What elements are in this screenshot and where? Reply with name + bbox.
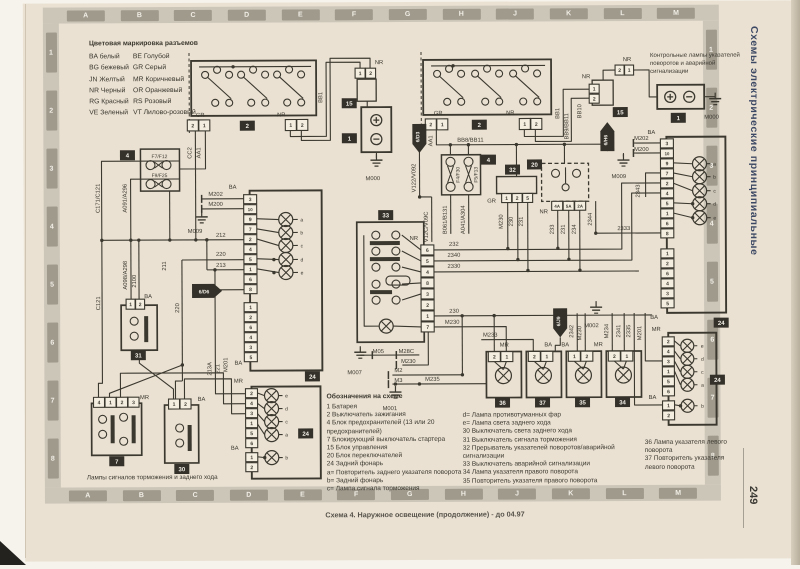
page-number-rule	[743, 448, 744, 528]
wire-label: NR	[277, 113, 285, 119]
fuse-icon	[464, 182, 473, 191]
wire	[175, 381, 182, 399]
wire	[279, 76, 303, 98]
wire-label: 230	[449, 309, 459, 315]
brake-lamps-note: Лампы сигналов торможения и заднего хода	[87, 474, 218, 482]
component-box	[361, 107, 391, 152]
color-code: JN Желтый	[89, 75, 133, 86]
contact-point	[520, 98, 527, 105]
wire	[434, 271, 639, 272]
photo-corner	[0, 541, 26, 565]
component-badge-number: 31	[135, 353, 142, 359]
contact-point	[262, 99, 269, 106]
connector-pin-number: 1	[359, 71, 362, 77]
wire-label: d	[285, 407, 288, 413]
fuse-icon	[162, 161, 171, 170]
wire-label: F5/F13	[474, 167, 480, 183]
wire	[674, 361, 680, 372]
contact-point	[444, 98, 451, 105]
wire-label: 213A	[207, 362, 213, 376]
wire-label: 230	[509, 217, 515, 227]
wire	[256, 219, 279, 220]
wire-label: F4/F30	[456, 167, 462, 183]
connector-pin-number: 1	[573, 354, 576, 360]
wire	[673, 173, 693, 177]
wire-junction	[594, 231, 597, 234]
wire-label: MR	[500, 343, 509, 349]
component-box	[497, 176, 537, 193]
contact-point	[238, 71, 245, 78]
wire-label: BA	[561, 342, 569, 348]
connector-pin-number: 9	[666, 161, 669, 167]
contact-point	[372, 296, 380, 304]
ground-label: M000	[366, 176, 381, 182]
wire	[215, 270, 246, 394]
wire-junction	[213, 268, 216, 271]
wire-label: A091/A296	[123, 184, 129, 213]
contact-point	[372, 280, 380, 288]
connector-pin-number: 1	[667, 403, 670, 409]
wire-label: BA	[544, 342, 552, 348]
wire	[102, 240, 244, 241]
wire-label: d	[701, 357, 704, 363]
wire-label: M200	[208, 202, 223, 208]
color-code-legend: Цветовая маркировка разъемов BA белыйBE …	[89, 39, 200, 120]
wire	[131, 179, 180, 240]
component-badge-number: 24	[302, 432, 309, 438]
component-badge-number: 15	[617, 110, 624, 116]
contact-point	[120, 437, 128, 445]
wire-junction	[272, 258, 275, 261]
connector-pin-number: 2	[533, 354, 536, 360]
wire-label: M201	[637, 326, 643, 341]
connector-pin-number: 5A	[566, 204, 572, 209]
wire-label: d	[301, 257, 304, 263]
wire-junction	[449, 143, 452, 146]
wire-label: M202	[634, 136, 649, 142]
wire-junction	[205, 238, 208, 241]
wire	[256, 229, 279, 233]
connector-pin-number: 1	[666, 211, 669, 217]
connector-pin-number: 2	[593, 97, 596, 103]
contact-point	[274, 71, 281, 78]
wire-label: e	[301, 270, 304, 276]
wire-junction	[556, 247, 559, 250]
contact-point	[99, 415, 107, 423]
color-code: GR Серый	[133, 63, 200, 74]
wire-label: c	[285, 420, 288, 426]
page-number: 249	[747, 486, 759, 504]
wire-label: NR	[582, 74, 590, 80]
wire-label: V122/V092	[411, 164, 417, 193]
wire-label: a	[300, 217, 303, 223]
connector-pin-number: 2	[184, 402, 187, 408]
wire-label: NR	[506, 111, 514, 117]
connector-pin-number: 6	[250, 441, 253, 447]
contact-point	[534, 98, 541, 105]
contact-point	[458, 70, 465, 77]
contact-point	[120, 413, 128, 421]
wire-label: BA	[647, 130, 655, 136]
wire-label: BA	[229, 185, 237, 191]
component-box	[191, 60, 316, 116]
connector-pin-number: 3	[666, 291, 669, 297]
wire-label: V12C/V09C	[424, 212, 430, 243]
wire-junction	[563, 143, 566, 146]
contact-point	[372, 263, 380, 271]
wire-label: M235	[425, 377, 440, 383]
wire-label: NR	[540, 209, 548, 215]
connector-pin-number: 8	[426, 281, 429, 287]
wire	[673, 213, 693, 218]
color-code: VT Лилово-розовый	[133, 108, 200, 119]
page-paper: AABBCCDDEEFFGGHHJJKKLLMM1122334455667788…	[23, 0, 795, 561]
designations-column-3: 36 Лампа указателя левого поворота37 Пов…	[645, 439, 745, 472]
contact-point	[99, 430, 107, 438]
wire-label: M201	[223, 358, 229, 373]
fuse-icon	[146, 161, 155, 170]
control-lamps-note: Контрольные лампы указателей поворотов и…	[650, 53, 746, 77]
wire-label: 2100	[132, 275, 138, 288]
connector-pin-number: 1	[628, 68, 631, 74]
component-box	[121, 305, 157, 350]
color-code: BA белый	[89, 52, 133, 63]
connector-pin-number: 5	[666, 301, 669, 307]
connector-pin-number: 5	[250, 431, 253, 437]
page-edge	[25, 4, 26, 558]
wire-label: C171/C121	[96, 184, 102, 213]
contact-point	[262, 71, 269, 78]
wire	[393, 326, 421, 327]
wire	[434, 183, 661, 250]
wire-junction	[578, 269, 581, 272]
wire-junction	[100, 239, 103, 242]
wire-label: 212	[216, 233, 226, 239]
wire-junction	[394, 382, 397, 385]
wire-label: e	[701, 344, 704, 350]
wire-label: AA1	[428, 135, 434, 146]
contact-point	[392, 296, 400, 304]
connector-pin-number: 1	[593, 87, 596, 93]
connector-pin-number: 1	[289, 123, 292, 129]
contact-point	[496, 98, 503, 105]
wire-label: 2335	[626, 325, 632, 338]
wire-label: F9/F25	[152, 173, 168, 179]
connector-pin-number: 2	[618, 68, 621, 74]
wire-label: M202	[208, 192, 223, 198]
connector-pin-number: 2	[139, 302, 142, 308]
connector-pin-number: 3	[249, 345, 252, 351]
wire-label: 2330	[447, 264, 460, 270]
contact-bar	[132, 415, 136, 443]
connector-pin-number: 1	[441, 122, 444, 128]
connector-pin-number: 6	[426, 248, 429, 254]
designations-column-1: 1 Батарея2 Выключатель зажигания4 Блок п…	[327, 403, 479, 494]
fuse-icon	[162, 180, 171, 189]
connector-pin-number: 1	[249, 305, 252, 311]
wire-label: d	[713, 202, 716, 208]
connector-pin-number: 2	[426, 303, 429, 309]
contact-point	[392, 247, 400, 255]
wire-junction	[263, 456, 266, 459]
wire-label: BA	[198, 397, 206, 403]
connector-pin-number: 7	[666, 171, 669, 177]
wire-label: 2344	[588, 212, 594, 226]
wire-label: 220	[175, 303, 181, 313]
wire-label: MR	[652, 327, 661, 333]
connector-pin-number: 1	[173, 402, 176, 408]
wire-label: MR	[594, 342, 603, 348]
color-legend-row: NR ЧерныйOR Оранжевый	[89, 86, 200, 98]
wire-label: M230	[445, 320, 460, 326]
wire	[402, 251, 421, 261]
connector-pin-number: 6	[249, 277, 252, 283]
wire-label: 213	[216, 263, 226, 269]
component-badge-number: 33	[382, 213, 389, 219]
color-code: RS Розовый	[133, 97, 200, 108]
reference-arrow-label: 6/J9	[556, 316, 562, 326]
wire-label: 221	[215, 364, 221, 374]
wire-junction	[272, 271, 275, 274]
connector-pin-number: 2	[613, 354, 616, 360]
wire-label: MR	[140, 395, 149, 401]
connector-pin-number: 1	[505, 354, 508, 360]
ground-label: M000	[704, 115, 719, 121]
wire-label: M28C	[399, 349, 414, 355]
connector-pin-number: 6	[249, 325, 252, 331]
contact-bar	[370, 257, 400, 261]
connector-pin-number: 4A	[554, 204, 560, 209]
component-badge-number: 37	[539, 401, 546, 407]
color-legend-row: BG бежевыйGR Серый	[89, 63, 200, 75]
contact-point	[226, 99, 233, 106]
wire-label: a	[285, 433, 288, 439]
wire-label: BA	[649, 395, 657, 401]
ground-label: M009	[612, 174, 627, 180]
component-badge-number: 24	[309, 375, 316, 381]
wire-label: BA	[234, 361, 242, 367]
contact-point	[458, 98, 465, 105]
reference-arrow-label: 6/D3	[415, 131, 421, 142]
wire-label: BA	[144, 294, 152, 300]
connector-pin-number: 1	[667, 369, 670, 375]
connector-pin-number: 1	[250, 421, 253, 427]
contact-point	[392, 231, 400, 239]
contact-point	[372, 231, 380, 239]
wire-label: BB1	[318, 92, 324, 103]
color-legend-row: BA белыйBE Голубой	[89, 52, 200, 64]
connector-pin-number: 1	[666, 251, 669, 257]
color-code: BG бежевый	[89, 64, 133, 75]
wire	[673, 203, 693, 204]
connector-pin-number: 2	[667, 339, 670, 345]
wire-label: a	[701, 383, 704, 389]
connector-pin-number: 3	[249, 197, 252, 203]
wire-label: BB1	[555, 108, 561, 119]
connector-pin-number: 5	[249, 257, 252, 263]
connector-pin-number: 2	[666, 261, 669, 267]
wire-junction	[460, 314, 463, 317]
connector-pin-number: 2	[666, 181, 669, 187]
connector-pin-number: 6	[667, 389, 670, 395]
contact-point	[130, 317, 138, 325]
color-code: VE Зеленый	[89, 108, 133, 119]
ground-label: M009	[188, 229, 203, 235]
contact-bar	[144, 316, 148, 342]
wire	[477, 76, 501, 98]
wire-label: 2343	[636, 185, 642, 198]
component-box	[668, 333, 716, 425]
component-box	[250, 190, 323, 370]
connector-pin-number: 2	[301, 123, 304, 129]
wire	[402, 283, 421, 284]
designations-column-2: d= Лампа противотуманных фарe= Лампа све…	[463, 411, 641, 485]
wire	[674, 351, 680, 359]
component-badge-number: 15	[346, 102, 353, 108]
designation-item: 4 Блок предохранителей (13 или 20 предох…	[327, 419, 479, 436]
wire-label: c	[701, 370, 704, 376]
color-code: OR Оранжевый	[133, 86, 200, 97]
component-badge-number: 32	[509, 168, 516, 174]
color-legend-title: Цветовая маркировка разъемов	[89, 39, 200, 50]
wire-label: BA	[650, 315, 658, 321]
wire-label: 2333	[617, 226, 630, 232]
designation-item: 37 Повторитель указателя левого поворота	[645, 455, 745, 472]
designations-title: Обозначения на схеме	[326, 393, 402, 400]
color-legend-table: BA белыйBE ГолубойBG бежевыйGR СерыйJN Ж…	[89, 52, 200, 120]
wire	[402, 267, 421, 272]
chapter-side-title: Схемы электрические принципиальные	[748, 26, 760, 356]
connector-pin-number: 4	[666, 281, 669, 287]
contact-bar	[370, 290, 392, 294]
connector-pin-number: 8	[666, 231, 669, 237]
contact-point	[496, 70, 503, 77]
connector-pin-number: 4	[249, 247, 252, 253]
connector-pin-number: 4	[249, 335, 252, 341]
wire-junction	[418, 195, 421, 198]
ground-label: M007	[347, 370, 362, 376]
wire-label: c	[713, 189, 716, 195]
wire-junction	[194, 238, 197, 241]
wire-label: NR	[410, 236, 418, 242]
connector-pin-number: 4	[98, 400, 101, 406]
wire-junction	[467, 143, 470, 146]
wire-label: BB9/BB11	[564, 113, 570, 139]
contact-bar	[188, 425, 192, 451]
wire-label: 232	[449, 242, 459, 248]
wire-label: A041/A304	[461, 205, 467, 234]
wire-label: GR	[487, 199, 496, 205]
connector-pin-number: 2	[535, 122, 538, 128]
connector-pin-number: 2	[191, 123, 194, 129]
connector-pin-number: 3	[667, 359, 670, 365]
contact-point	[298, 71, 305, 78]
wire	[98, 240, 103, 397]
wire-label: e	[713, 216, 716, 222]
wire-junction	[231, 65, 234, 68]
wire-junction	[461, 373, 464, 376]
designation-item: c= Лампа сигнала торможения	[327, 485, 479, 494]
connector-pin-number: 2A	[577, 204, 583, 209]
designation-item: a= Повторитель заднего указателя поворот…	[327, 468, 479, 477]
connector-pin-number: 4	[250, 401, 253, 407]
contact-point	[248, 99, 255, 106]
wire	[555, 337, 560, 351]
wire-label: M05	[373, 349, 384, 355]
contact-point	[562, 184, 569, 191]
connector-pin-number: 1	[250, 455, 253, 461]
wire-label: a	[713, 162, 716, 168]
reference-arrow-label: 6/H6	[603, 135, 609, 146]
fuse-icon	[146, 180, 155, 189]
component-badge-number: 20	[531, 163, 538, 169]
scanned-manual-page: AABBCCDDEEFFGGHHJJKKLLMM1122334455667788…	[0, 0, 800, 565]
connector-pin-number: 3	[426, 292, 429, 298]
designation-item: 36 Лампа указателя левого поворота	[645, 439, 745, 456]
connector-pin-number: 2	[250, 465, 253, 471]
connector-pin-number: 8	[249, 287, 252, 293]
wire-label: b	[300, 230, 303, 236]
wire-label: 234	[572, 224, 578, 234]
connector-pin-number: 1	[545, 354, 548, 360]
wire-label: NR	[623, 57, 631, 63]
connector-pin-number: 9	[249, 217, 252, 223]
connector-pin-number: 10	[248, 207, 253, 212]
wire	[207, 77, 231, 99]
component-badge-number: 24	[718, 321, 725, 327]
contact-point	[212, 99, 219, 106]
wire-label: 2342	[569, 325, 575, 338]
wire-label: 231	[561, 224, 567, 234]
connector-pin-number: 5	[249, 355, 252, 361]
contact-point	[176, 439, 184, 447]
contact-point	[534, 70, 541, 77]
wire-label: A098/A298	[123, 261, 129, 290]
connector-pin-number: 1	[109, 400, 112, 406]
reference-arrow-label: 6/D6	[199, 289, 210, 295]
wire-junction	[516, 258, 519, 261]
connector-pin-number: 7	[249, 227, 252, 233]
wire	[603, 70, 615, 80]
wire-label: 231	[519, 217, 525, 227]
connector-pin-number: 3	[250, 411, 253, 417]
contact-point	[284, 99, 291, 106]
wire-label: C121	[96, 296, 102, 310]
wire-label: M234	[604, 323, 610, 338]
wire-junction	[567, 258, 570, 261]
component-box	[165, 405, 199, 463]
page-edge-shadow	[791, 0, 800, 565]
wire	[256, 239, 279, 246]
contact-point	[482, 98, 489, 105]
connector-pin-number: 3	[132, 400, 135, 406]
wire-junction	[168, 238, 171, 241]
connector-pin-number: 1	[426, 314, 429, 320]
wire-label: M233	[483, 333, 498, 339]
connector-pin-number: 6	[666, 221, 669, 227]
wire-junction	[526, 269, 529, 272]
connector-pin-number: 10	[665, 151, 670, 156]
connector-pin-number: 7	[426, 325, 429, 331]
wire	[439, 76, 463, 98]
connector-pin-number: 4	[426, 270, 429, 276]
wire-junction	[691, 216, 694, 219]
wire-label: BB10	[577, 104, 583, 118]
wire-label: NR	[375, 60, 383, 66]
component-badge-number: 24	[714, 378, 721, 384]
wire-junction	[691, 202, 694, 205]
contact-point	[372, 247, 380, 255]
